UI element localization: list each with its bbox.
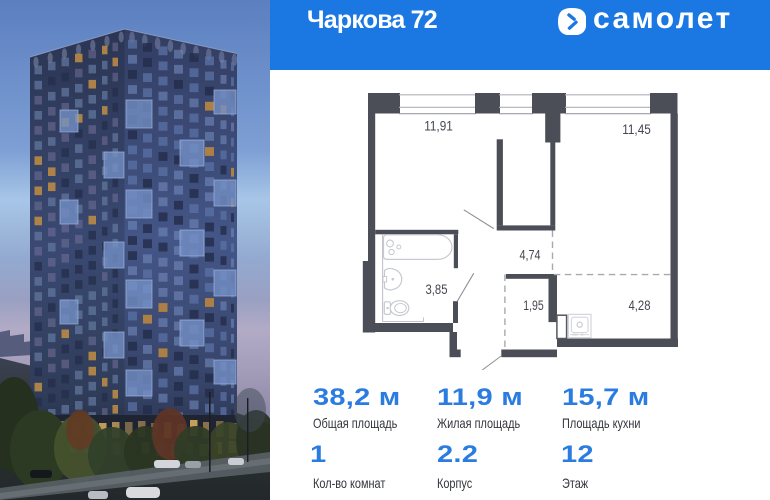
svg-text:4,74: 4,74 bbox=[520, 247, 541, 262]
svg-text:11,45: 11,45 bbox=[622, 122, 651, 137]
svg-text:11,91: 11,91 bbox=[424, 118, 453, 133]
svg-text:3,85: 3,85 bbox=[426, 282, 448, 297]
svg-text:4,28: 4,28 bbox=[629, 298, 651, 313]
svg-text:1,95: 1,95 bbox=[523, 298, 544, 313]
